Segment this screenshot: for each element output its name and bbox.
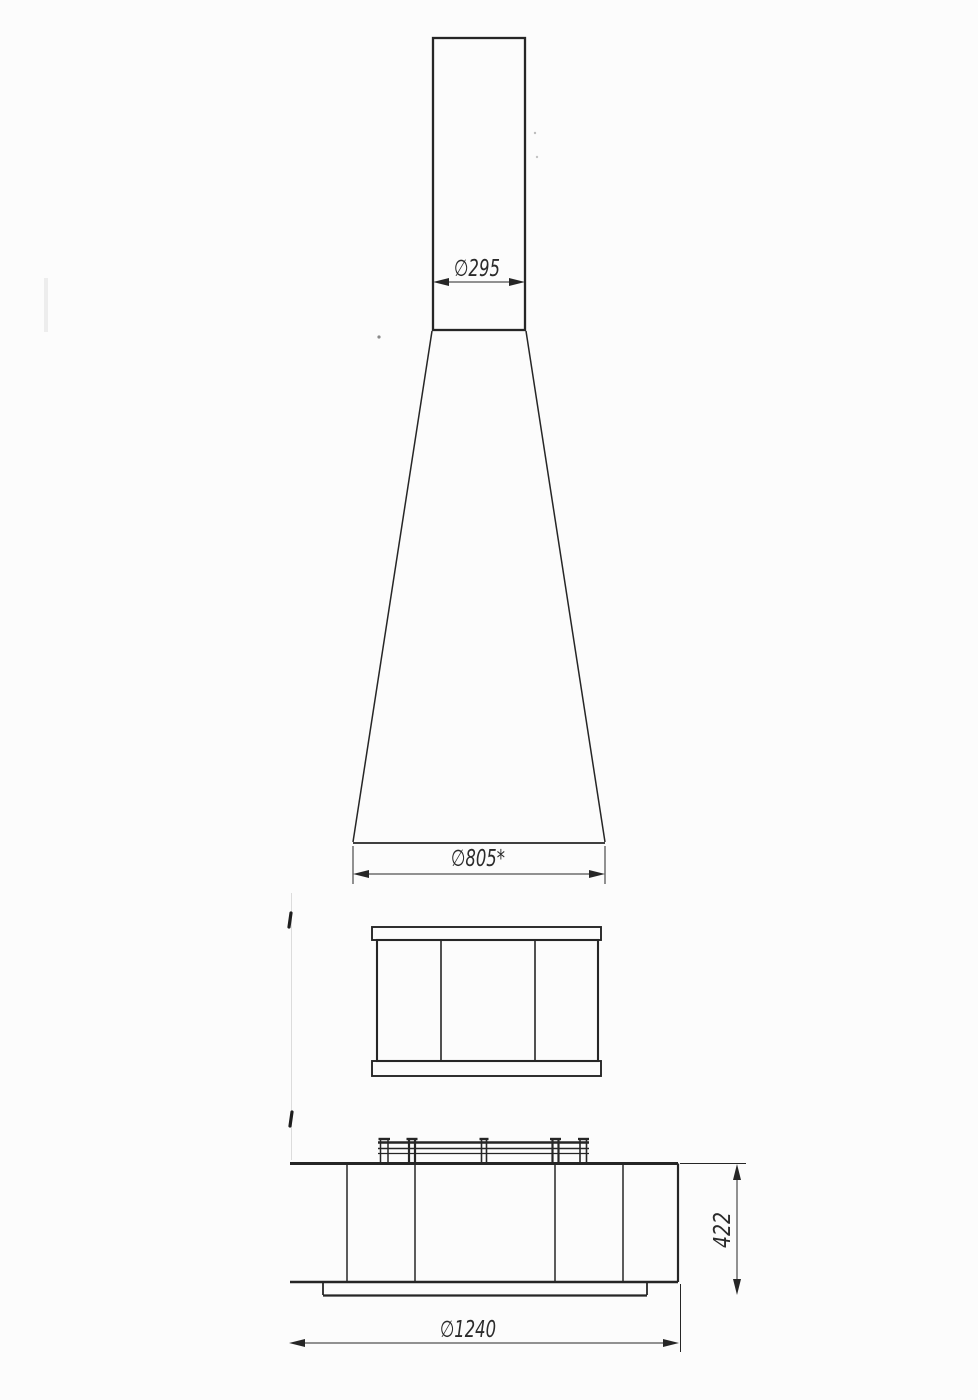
scan-smudge bbox=[44, 278, 48, 332]
tick-mark bbox=[290, 1112, 292, 1126]
base-diameter-label: ∅1240 bbox=[440, 1317, 496, 1343]
arrowhead-right bbox=[589, 870, 605, 878]
hood-diameter-label: ∅805* bbox=[451, 846, 505, 872]
base-body-outline bbox=[290, 1164, 678, 1283]
scan-artifacts bbox=[44, 132, 538, 1160]
dimension-labels: ∅295 ∅805* ∅1240 422 bbox=[440, 256, 736, 1343]
speck bbox=[377, 335, 380, 338]
hood-cone-outline bbox=[353, 331, 605, 843]
guard-rail bbox=[378, 1139, 589, 1163]
arrowhead-up bbox=[733, 1164, 741, 1180]
technical-drawing: ∅295 ∅805* ∅1240 422 bbox=[0, 0, 978, 1400]
drawing-sheet: ∅295 ∅805* ∅1240 422 bbox=[0, 0, 978, 1400]
speck bbox=[534, 132, 536, 134]
pipe-diameter-label: ∅295 bbox=[454, 256, 500, 282]
base-flange-outline bbox=[323, 1283, 647, 1296]
hearth-body-outline bbox=[377, 940, 598, 1061]
arrowhead-right bbox=[663, 1339, 679, 1347]
base-side-view bbox=[289, 1139, 746, 1352]
cone-right-edge bbox=[526, 331, 605, 842]
arrowhead-right bbox=[509, 278, 525, 286]
hearth-front-view bbox=[372, 927, 601, 1076]
hood-front-view bbox=[353, 38, 605, 884]
base-height-label: 422 bbox=[710, 1212, 736, 1248]
arrowhead-left bbox=[433, 278, 449, 286]
arrowhead-down bbox=[733, 1279, 741, 1295]
hearth-bottom-rim bbox=[372, 1061, 601, 1076]
tick-mark bbox=[289, 913, 291, 927]
arrowhead-left bbox=[289, 1339, 305, 1347]
flue-pipe-outline bbox=[433, 38, 525, 330]
cone-left-edge bbox=[353, 331, 432, 842]
arrowhead-left bbox=[353, 870, 369, 878]
speck bbox=[536, 156, 538, 158]
hearth-top-rim bbox=[372, 927, 601, 940]
